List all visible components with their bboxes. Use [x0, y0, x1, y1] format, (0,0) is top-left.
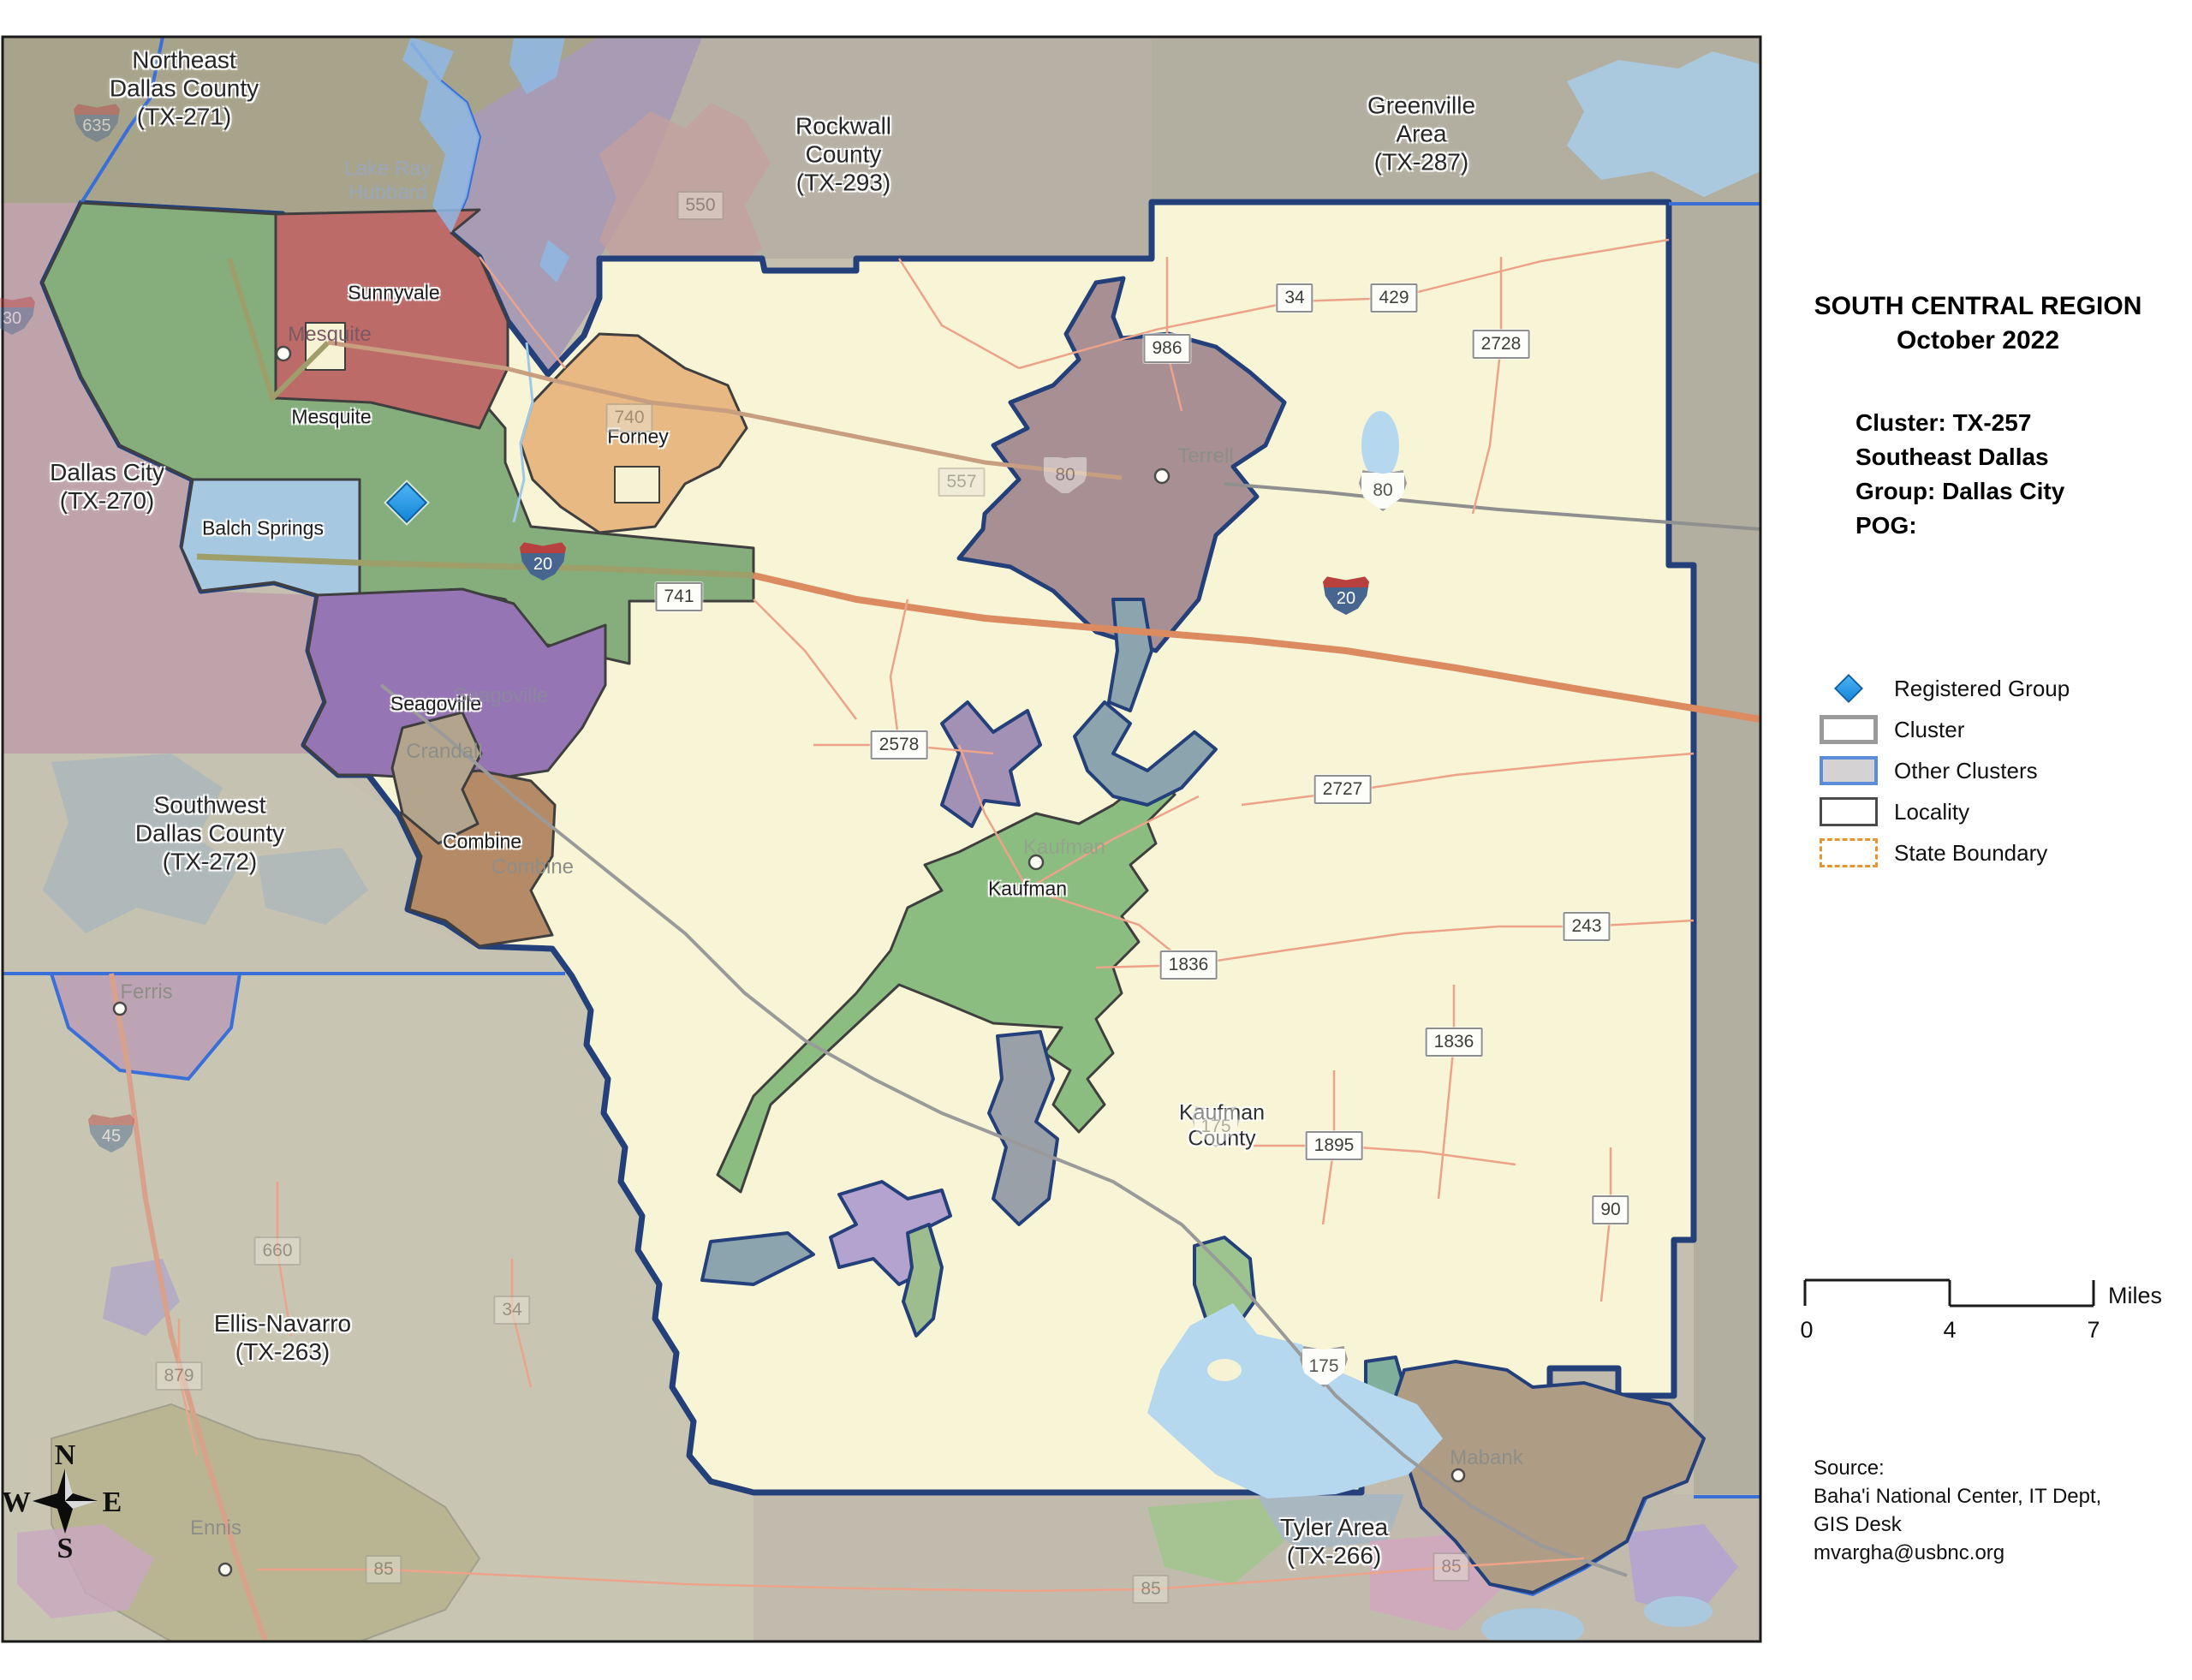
- shield-fm-34: 34: [1276, 283, 1313, 313]
- shield-fm-2578: 2578: [871, 730, 928, 760]
- map-title-line2: October 2022: [1777, 324, 2179, 358]
- source-line-4: mvargha@usbnc.org: [1814, 1539, 2101, 1567]
- cluster-info: Cluster: TX-257 Southeast Dallas Group: …: [1855, 406, 2064, 543]
- shield-fm-2728: 2728: [1473, 330, 1530, 359]
- shield-fm-740-ghost: 740: [605, 403, 652, 432]
- legend-row-state-boundary: State Boundary: [1817, 832, 2070, 873]
- shield-fm-2727: 2727: [1314, 775, 1372, 804]
- compass-e: E: [103, 1486, 122, 1519]
- shield-fm-85-ghost-c: 85: [1132, 1575, 1169, 1604]
- compass-w: W: [2, 1486, 31, 1519]
- source-info: Source: Baha'i National Center, IT Dept,…: [1814, 1454, 2101, 1567]
- scale-tick-4: 4: [1943, 1317, 1956, 1343]
- map-title: SOUTH CENTRAL REGION October 2022: [1777, 289, 2179, 358]
- other-clusters-swatch-icon: [1820, 756, 1878, 785]
- shield-sh-34-ghost: 34: [493, 1296, 530, 1325]
- legend-row-locality: Locality: [1817, 791, 2070, 832]
- legend-row-cluster: Cluster: [1817, 709, 2070, 750]
- cluster-info-group: Group: Dallas City: [1855, 474, 2064, 509]
- shield-fm-85-ghost-w: 85: [365, 1555, 402, 1584]
- scale-tick-0: 0: [1800, 1317, 1813, 1343]
- shield-fm-1836-e: 1836: [1426, 1028, 1483, 1057]
- shield-fm-879-ghost: 879: [155, 1361, 202, 1391]
- shield-fm-550-ghost: 550: [676, 191, 724, 220]
- shield-fm-90: 90: [1592, 1195, 1629, 1224]
- shield-fm-243: 243: [1563, 912, 1610, 941]
- legend: Registered Group Cluster Other Clusters …: [1817, 668, 2070, 873]
- shield-fm-660-ghost: 660: [253, 1236, 301, 1266]
- legend-label-state-boundary: State Boundary: [1894, 840, 2047, 867]
- source-line-3: GIS Desk: [1814, 1510, 2101, 1539]
- compass-n: N: [55, 1439, 76, 1472]
- balch-springs-locality: [182, 480, 360, 599]
- compass-s: S: [57, 1533, 74, 1565]
- cluster-info-pog: POG:: [1855, 509, 2064, 543]
- shield-fm-1895: 1895: [1306, 1131, 1363, 1160]
- state-boundary-swatch-icon: [1820, 838, 1878, 867]
- legend-row-other-clusters: Other Clusters: [1817, 750, 2070, 791]
- scale-tick-7: 7: [2087, 1317, 2100, 1343]
- cluster-info-name: Southeast Dallas: [1855, 440, 2064, 474]
- locality-swatch-icon: [1820, 797, 1878, 826]
- pond-terrell: [1361, 411, 1399, 480]
- scale-unit: Miles: [2108, 1283, 2162, 1309]
- cluster-swatch-icon: [1820, 715, 1878, 744]
- map-title-line1: SOUTH CENTRAL REGION: [1777, 289, 2179, 324]
- legend-label-cluster: Cluster: [1894, 717, 1964, 743]
- map-document: Northeast Dallas County (TX-271) Rockwal…: [0, 0, 2192, 1680]
- shield-fm-1836-w: 1836: [1160, 950, 1218, 980]
- shield-fm-85-ghost-e: 85: [1433, 1552, 1469, 1582]
- cluster-info-cluster: Cluster: TX-257: [1855, 406, 2064, 440]
- shield-fm-429: 429: [1370, 283, 1417, 313]
- legend-label-other-clusters: Other Clusters: [1894, 758, 2038, 784]
- shield-fm-986: 986: [1143, 334, 1190, 363]
- legend-label-locality: Locality: [1894, 799, 1969, 825]
- scale-bar: [1805, 1280, 2094, 1306]
- shield-fm-741: 741: [655, 582, 702, 611]
- source-line-2: Baha'i National Center, IT Dept,: [1814, 1482, 2101, 1510]
- shield-fm-557-ghost: 557: [938, 468, 985, 497]
- source-line-1: Source:: [1814, 1454, 2101, 1482]
- legend-label-registered-group: Registered Group: [1894, 676, 2070, 702]
- registered-group-icon: [1834, 674, 1863, 703]
- legend-row-registered-group: Registered Group: [1817, 668, 2070, 709]
- forney-hole: [615, 467, 659, 503]
